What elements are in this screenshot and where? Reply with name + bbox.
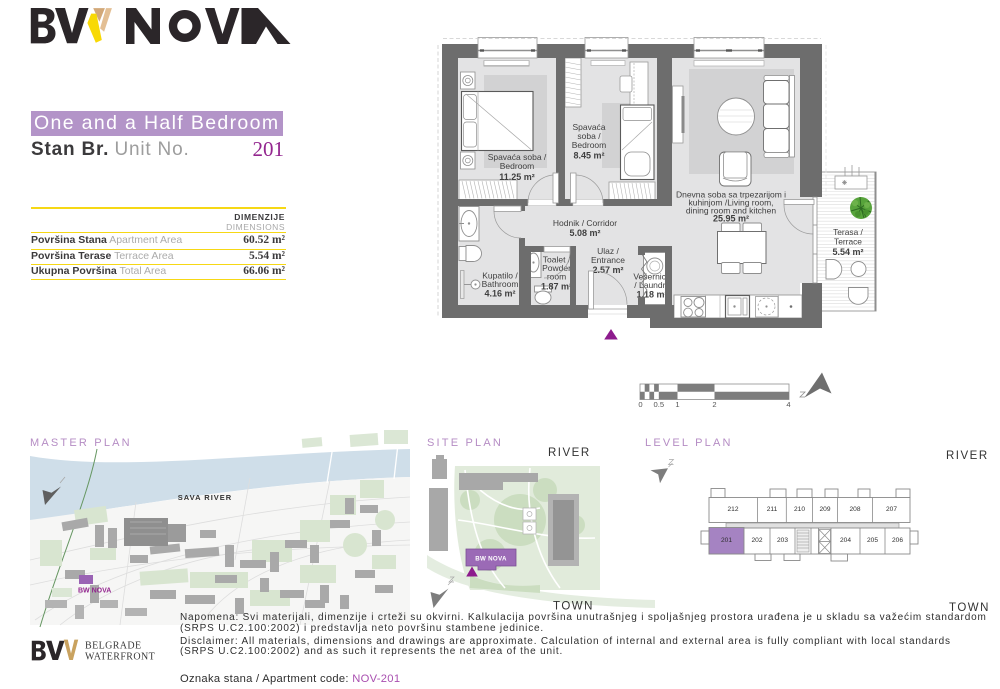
svg-text:208: 208 (849, 506, 860, 513)
svg-text:212: 212 (727, 506, 738, 513)
svg-text:4: 4 (786, 400, 790, 409)
svg-text:MASTER PLAN: MASTER PLAN (30, 437, 132, 449)
svg-text:209: 209 (819, 506, 830, 513)
svg-text:4.16 m²: 4.16 m² (484, 289, 515, 299)
svg-text:207: 207 (886, 506, 897, 513)
svg-text:Terrace: Terrace (834, 237, 862, 247)
svg-text:BW NOVA: BW NOVA (78, 588, 111, 595)
svg-text:201: 201 (721, 537, 732, 544)
svg-text:1.87 m²: 1.87 m² (541, 282, 572, 292)
svg-text:TOWN: TOWN (553, 601, 594, 613)
svg-text:5.54 m²: 5.54 m² (832, 247, 863, 257)
svg-text:205: 205 (867, 537, 878, 544)
svg-text:RIVER: RIVER (548, 447, 591, 459)
svg-text:204: 204 (840, 537, 851, 544)
svg-text:211: 211 (767, 506, 778, 513)
svg-text:202: 202 (751, 537, 762, 544)
svg-text:1: 1 (675, 400, 679, 409)
svg-text:SAVA RIVER: SAVA RIVER (178, 493, 232, 502)
svg-text:25.95 m²: 25.95 m² (713, 214, 749, 224)
svg-text:Bedroom: Bedroom (500, 161, 535, 171)
svg-text:5.08 m²: 5.08 m² (569, 228, 600, 238)
svg-text:Hodnik / Corridor: Hodnik / Corridor (553, 218, 617, 228)
svg-text:Bathroom: Bathroom (482, 279, 519, 289)
svg-text:Bedroom: Bedroom (572, 140, 607, 150)
svg-text:11.25 m²: 11.25 m² (499, 172, 535, 182)
svg-text:8.45 m²: 8.45 m² (573, 151, 604, 161)
svg-text:SITE PLAN: SITE PLAN (427, 437, 503, 449)
svg-text:RIVER: RIVER (946, 450, 989, 462)
svg-text:BELGRADE: BELGRADE (85, 641, 142, 652)
svg-text:2.57 m²: 2.57 m² (592, 265, 623, 275)
svg-text:BW NOVA: BW NOVA (475, 556, 507, 563)
svg-text:2: 2 (712, 400, 716, 409)
svg-text:206: 206 (892, 537, 903, 544)
svg-text:0: 0 (638, 400, 642, 409)
svg-text:0.5: 0.5 (654, 400, 665, 409)
svg-text:Terasa /: Terasa / (833, 227, 863, 237)
svg-text:room: room (547, 272, 566, 282)
svg-text:LEVEL PLAN: LEVEL PLAN (645, 437, 733, 449)
svg-text:Entrance: Entrance (591, 255, 625, 265)
svg-text:203: 203 (777, 537, 788, 544)
svg-text:210: 210 (794, 506, 805, 513)
svg-text:WATERFRONT: WATERFRONT (85, 652, 155, 663)
